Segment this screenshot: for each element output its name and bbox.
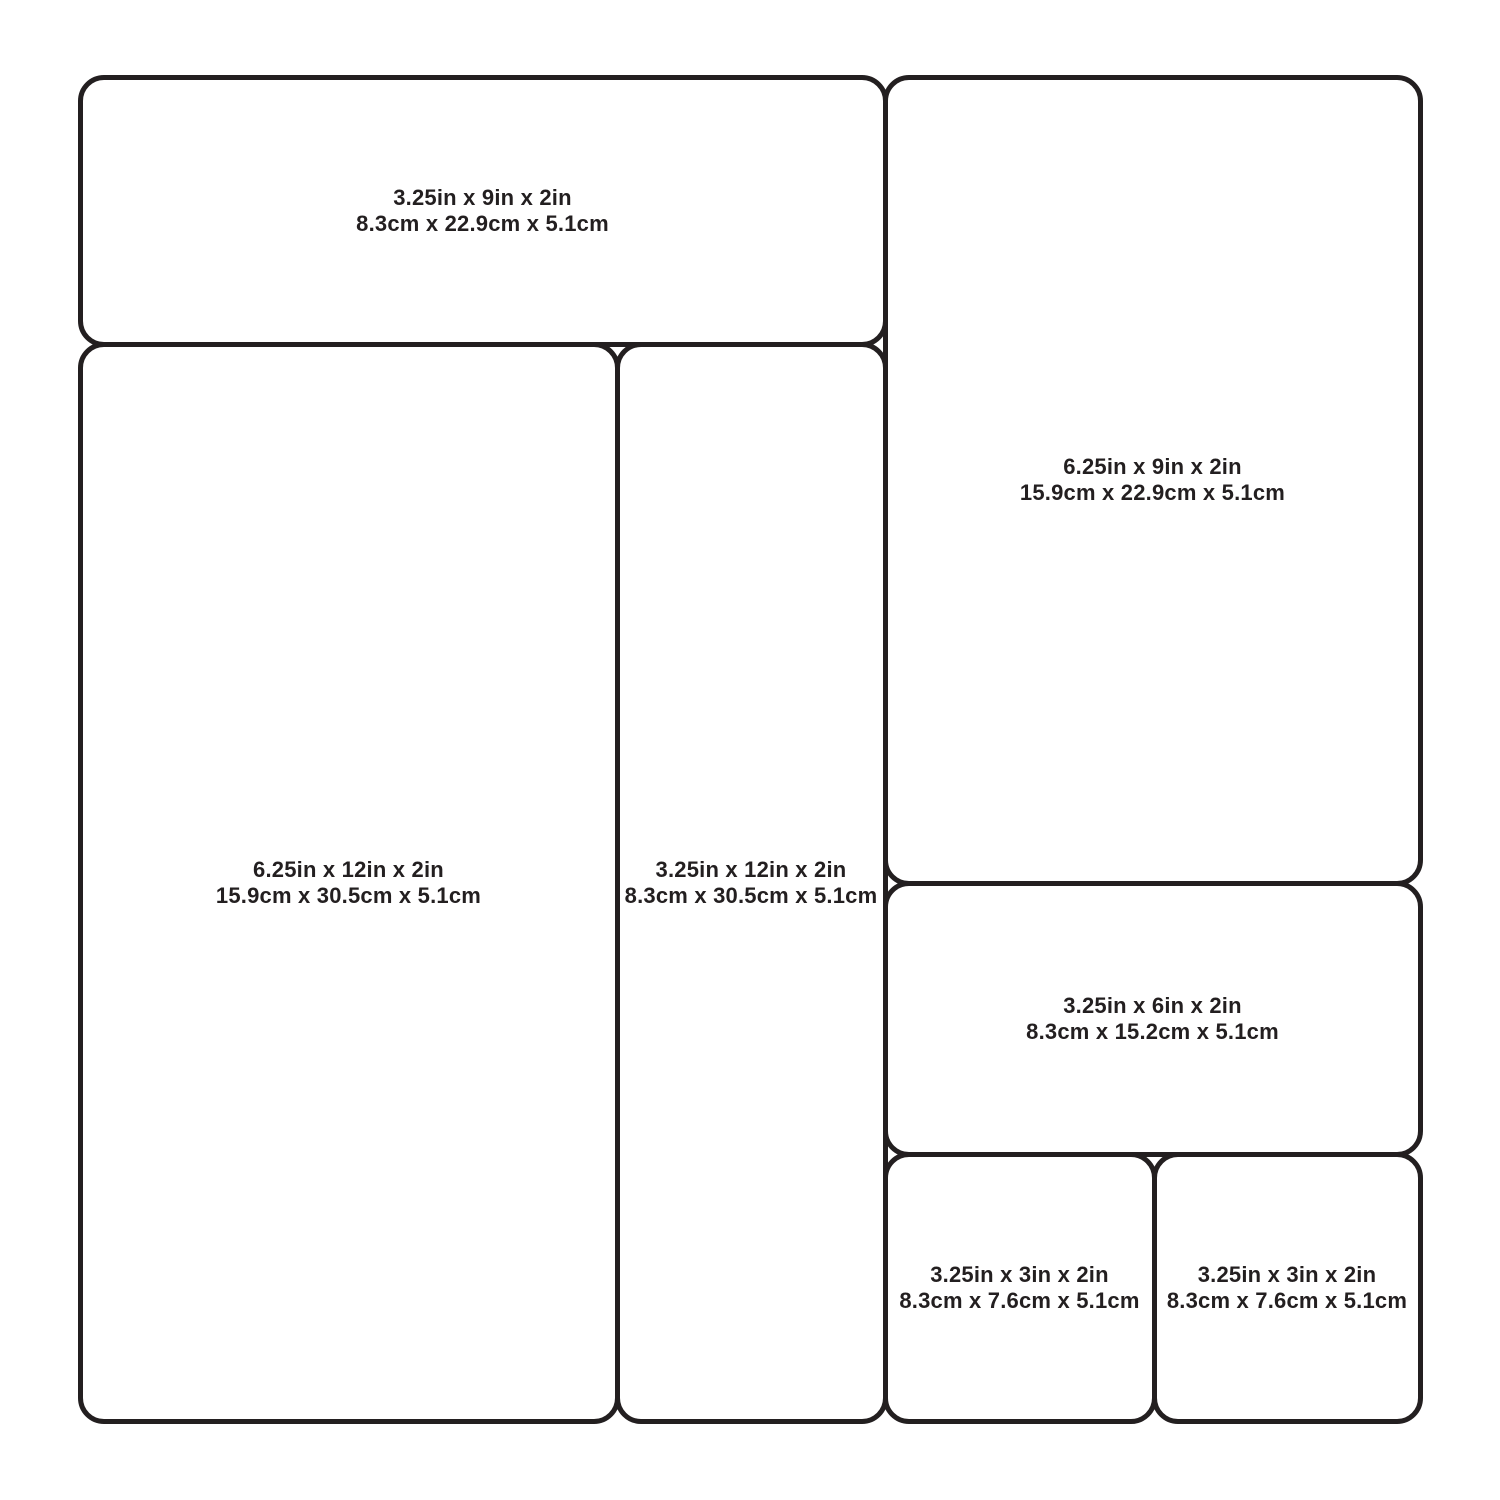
tray-left-tall: 6.25in x 12in x 2in 15.9cm x 30.5cm x 5.… [78, 342, 620, 1424]
dimension-inches: 3.25in x 9in x 2in [356, 185, 609, 211]
dimension-inches: 3.25in x 3in x 2in [899, 1262, 1139, 1288]
dimension-inches: 3.25in x 6in x 2in [1026, 993, 1279, 1019]
dimension-cm: 8.3cm x 7.6cm x 5.1cm [1167, 1288, 1407, 1314]
tray-right-medium: 3.25in x 6in x 2in 8.3cm x 15.2cm x 5.1c… [883, 881, 1423, 1157]
tray-right-large-label: 6.25in x 9in x 2in 15.9cm x 22.9cm x 5.1… [1020, 454, 1285, 506]
tray-middle-tall-label: 3.25in x 12in x 2in 8.3cm x 30.5cm x 5.1… [625, 857, 878, 909]
dimension-inches: 6.25in x 12in x 2in [216, 857, 481, 883]
dimension-inches: 6.25in x 9in x 2in [1020, 454, 1285, 480]
tray-top-wide-label: 3.25in x 9in x 2in 8.3cm x 22.9cm x 5.1c… [356, 185, 609, 237]
tray-right-medium-label: 3.25in x 6in x 2in 8.3cm x 15.2cm x 5.1c… [1026, 993, 1279, 1045]
tray-small-right-label: 3.25in x 3in x 2in 8.3cm x 7.6cm x 5.1cm [1167, 1262, 1407, 1314]
tray-middle-tall: 3.25in x 12in x 2in 8.3cm x 30.5cm x 5.1… [615, 342, 888, 1424]
dimension-cm: 15.9cm x 30.5cm x 5.1cm [216, 883, 481, 909]
dimension-inches: 3.25in x 12in x 2in [625, 857, 878, 883]
dimension-cm: 8.3cm x 30.5cm x 5.1cm [625, 883, 878, 909]
tray-right-large: 6.25in x 9in x 2in 15.9cm x 22.9cm x 5.1… [883, 75, 1423, 886]
tray-small-right: 3.25in x 3in x 2in 8.3cm x 7.6cm x 5.1cm [1152, 1152, 1423, 1424]
dimension-inches: 3.25in x 3in x 2in [1167, 1262, 1407, 1288]
dimension-cm: 8.3cm x 15.2cm x 5.1cm [1026, 1019, 1279, 1045]
dimension-cm: 8.3cm x 22.9cm x 5.1cm [356, 211, 609, 237]
tray-left-tall-label: 6.25in x 12in x 2in 15.9cm x 30.5cm x 5.… [216, 857, 481, 909]
tray-top-wide: 3.25in x 9in x 2in 8.3cm x 22.9cm x 5.1c… [78, 75, 888, 347]
dimension-cm: 15.9cm x 22.9cm x 5.1cm [1020, 480, 1285, 506]
tray-dimensions-diagram: 3.25in x 9in x 2in 8.3cm x 22.9cm x 5.1c… [0, 0, 1500, 1500]
dimension-cm: 8.3cm x 7.6cm x 5.1cm [899, 1288, 1139, 1314]
tray-small-left: 3.25in x 3in x 2in 8.3cm x 7.6cm x 5.1cm [883, 1152, 1157, 1424]
tray-small-left-label: 3.25in x 3in x 2in 8.3cm x 7.6cm x 5.1cm [899, 1262, 1139, 1314]
